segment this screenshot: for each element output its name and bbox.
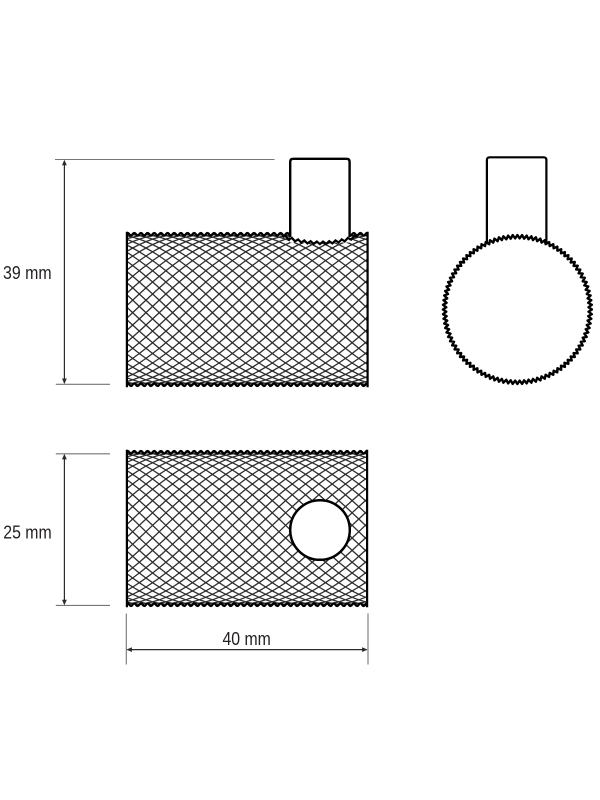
svg-text:39 mm: 39 mm bbox=[3, 263, 52, 283]
svg-text:25 mm: 25 mm bbox=[3, 522, 51, 542]
svg-text:40 mm: 40 mm bbox=[223, 629, 271, 649]
